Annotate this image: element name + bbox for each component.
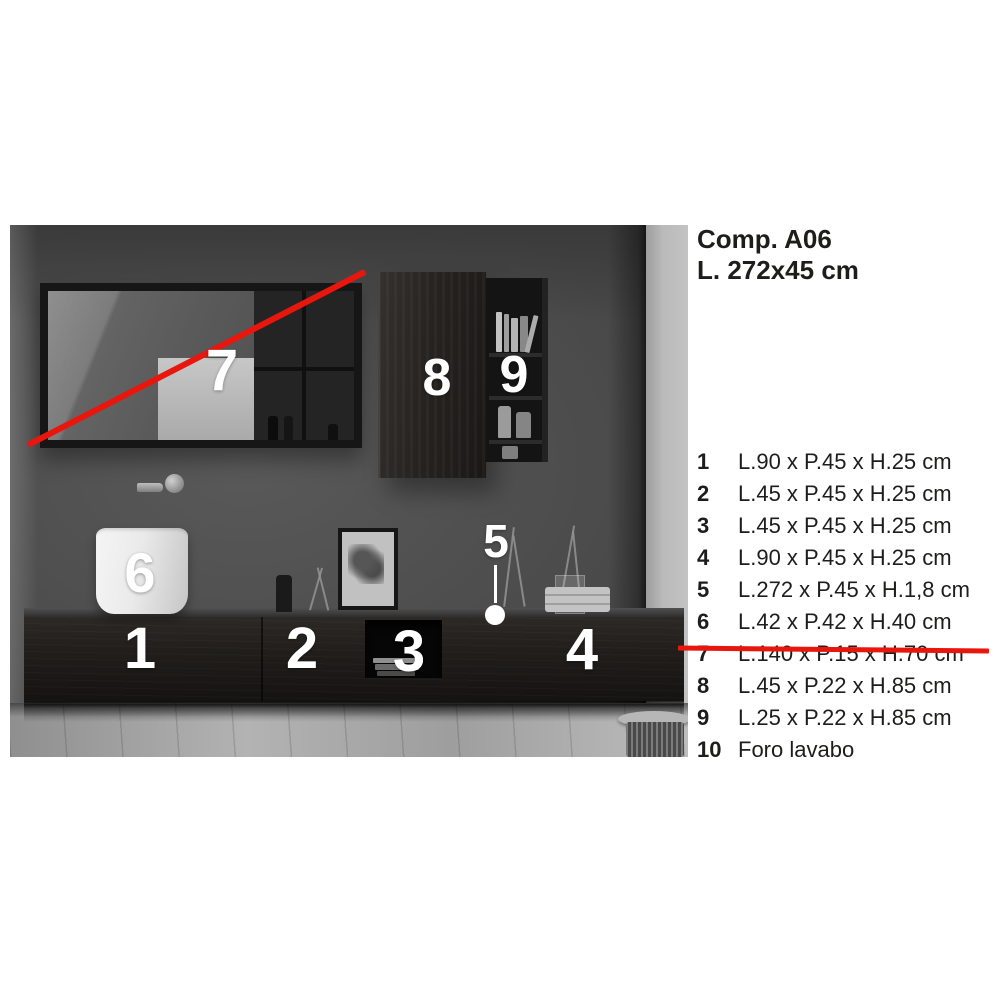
bottle-decor — [284, 416, 293, 440]
legend-dimension: L.90 x P.45 x H.25 cm — [738, 545, 952, 571]
legend-row: 5 L.272 x P.45 x H.1,8 cm — [697, 574, 970, 606]
legend-number: 1 — [697, 449, 738, 475]
bonsai-plant — [348, 544, 384, 584]
photo-label-6: 6 — [124, 545, 155, 601]
wall-faucet-knob — [165, 474, 184, 493]
legend-number: 2 — [697, 481, 738, 507]
legend-dimension: L.272 x P.45 x H.1,8 cm — [738, 577, 970, 603]
photo-label-4: 4 — [566, 621, 598, 679]
legend-dimension: L.45 x P.45 x H.25 cm — [738, 481, 952, 507]
legend-dimension: L.45 x P.22 x H.85 cm — [738, 673, 952, 699]
towel-stack — [545, 587, 610, 612]
photo-label-2: 2 — [286, 620, 318, 678]
legend-number: 8 — [697, 673, 738, 699]
picture-frame — [338, 528, 398, 610]
mirror-cabinet — [40, 283, 362, 448]
jar-decor — [502, 446, 518, 459]
legend-dimension: L.90 x P.45 x H.25 cm — [738, 449, 952, 475]
product-spec-page: 7 8 9 6 5 1 2 3 4 Comp. A06 L. 272x45 cm… — [0, 0, 1000, 1000]
tall-cabinet-edge-highlight — [378, 272, 380, 478]
photo-label-7: 7 — [206, 342, 238, 400]
legend-number: 5 — [697, 577, 738, 603]
dimension-legend: 1 L.90 x P.45 x H.25 cm 2 L.45 x P.45 x … — [697, 446, 970, 766]
wall-faucet-spout — [137, 483, 163, 492]
dark-bottle-decor — [276, 575, 292, 612]
legend-number: 6 — [697, 609, 738, 635]
under-vanity-shadow — [24, 704, 684, 722]
photo-label-5: 5 — [483, 518, 509, 564]
composition-title: Comp. A06 — [697, 224, 859, 255]
legend-dimension: L.45 x P.45 x H.25 cm — [738, 513, 952, 539]
shelf-board — [489, 440, 542, 444]
shelf-divider-vertical — [302, 291, 306, 440]
bottle-decor — [498, 406, 511, 438]
legend-row: 9 L.25 x P.22 x H.85 cm — [697, 702, 970, 734]
photo-label-3: 3 — [393, 623, 425, 681]
product-photo: 7 8 9 6 5 1 2 3 4 — [10, 225, 688, 757]
legend-number: 3 — [697, 513, 738, 539]
bottle-decor — [516, 412, 531, 438]
label-5-pointer-dot — [485, 605, 505, 625]
bottle-decor — [268, 416, 278, 440]
legend-row: 10 Foro lavabo — [697, 734, 970, 766]
side-table-slatted-base — [626, 722, 684, 757]
legend-dimension: Foro lavabo — [738, 737, 854, 763]
legend-number: 10 — [697, 737, 738, 763]
drawer-seam — [261, 617, 263, 701]
spec-header: Comp. A06 L. 272x45 cm — [697, 224, 859, 286]
legend-row: 6 L.42 x P.42 x H.40 cm — [697, 606, 970, 638]
legend-dimension: L.25 x P.22 x H.85 cm — [738, 705, 952, 731]
photo-label-1: 1 — [124, 620, 156, 678]
legend-row: 7 L.140 x P.15 x H.70 cm — [697, 638, 970, 670]
shelf-side-panel — [542, 278, 548, 462]
legend-row: 8 L.45 x P.22 x H.85 cm — [697, 670, 970, 702]
legend-row: 1 L.90 x P.45 x H.25 cm — [697, 446, 970, 478]
legend-dimension: L.42 x P.42 x H.40 cm — [738, 609, 952, 635]
legend-number: 4 — [697, 545, 738, 571]
legend-row: 3 L.45 x P.45 x H.25 cm — [697, 510, 970, 542]
shelf-divider-horizontal — [254, 367, 354, 371]
label-5-pointer-line — [494, 565, 497, 603]
photo-label-8: 8 — [423, 352, 452, 404]
legend-number: 9 — [697, 705, 738, 731]
legend-row: 2 L.45 x P.45 x H.25 cm — [697, 478, 970, 510]
composition-size: L. 272x45 cm — [697, 255, 859, 286]
photo-label-9: 9 — [500, 349, 529, 401]
legend-dimension: L.140 x P.15 x H.70 cm — [738, 641, 964, 667]
bottle-decor — [328, 424, 338, 440]
legend-row: 4 L.90 x P.45 x H.25 cm — [697, 542, 970, 574]
